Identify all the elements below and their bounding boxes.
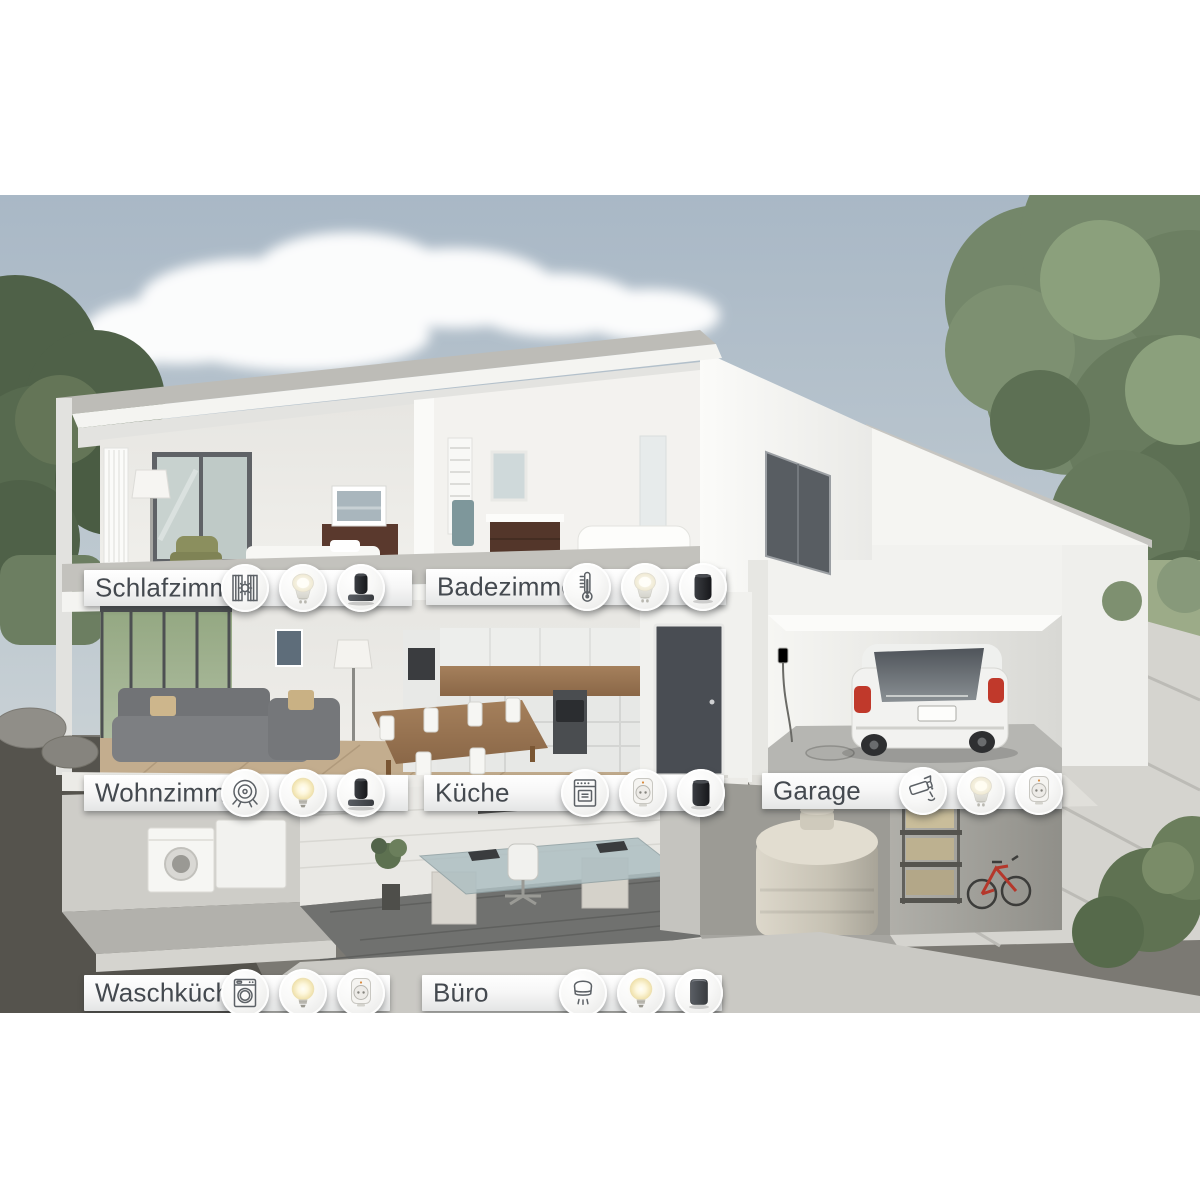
car [842,644,1018,763]
taillight-left [854,686,871,713]
washing-machine-icon [221,969,269,1013]
oven-icon [561,769,609,817]
room-name: Garage [773,776,861,807]
room-name: Büro [433,978,489,1009]
room-label-schlafzimmer: Schlafzimmer [84,570,412,606]
backsplash [440,666,640,696]
oven-badge [561,769,609,817]
speaker-on-shelf-badge [337,564,385,612]
gu10-spot-bulb-icon [957,767,1005,815]
washing-machine [148,828,214,892]
smart-plug-icon [1015,767,1063,815]
door-handle [710,700,715,705]
taillight-right [988,678,1004,703]
smart-speaker-grey-icon [675,969,723,1013]
photo-area: Schlafzimmer [0,195,1200,1013]
smoke-detector-badge [559,969,607,1013]
e27-bulb-badge [279,769,327,817]
wall-oven [408,648,435,680]
room-name: Küche [435,778,510,809]
smart-speaker-badge [679,563,727,611]
smart-home-cutaway-illustration: Schlafzimmer [0,0,1200,1200]
smart-plug-icon [619,769,667,817]
gu10-bulb-badge [957,767,1005,815]
vanity [486,514,564,556]
kitchen-interior [372,628,640,778]
robot-vacuum-badge [221,769,269,817]
shutter-control-icon [221,564,269,612]
smart-plug-icon [337,969,385,1013]
entrance [640,592,752,789]
e27-smart-bulb-icon [617,969,665,1013]
gu10-spot-bulb-icon [279,564,327,612]
shutter-control-badge [221,564,269,612]
office-chair [505,844,541,904]
towel-radiator [448,438,474,546]
e27-bulb-badge [617,969,665,1013]
radiator-thermostat-icon [563,563,611,611]
sofa [112,688,340,762]
e27-bulb-badge [279,969,327,1013]
smart-speaker-icon [679,563,727,611]
radiator [104,448,128,564]
bathroom-interior [434,370,700,568]
smart-plug-badge [1015,767,1063,815]
room-label-garage: Garage [762,773,1062,809]
room-label-kueche: Küche [424,775,724,811]
room-label-badezimmer: Badezimmer [426,569,726,605]
security-camera-icon [899,767,947,815]
gu10-bulb-badge [279,564,327,612]
washing-machine-badge [221,969,269,1013]
shower-glass [640,436,666,536]
security-camera-badge [899,767,947,815]
speaker-on-shelf-badge [337,769,385,817]
thermostat-badge [563,563,611,611]
robot-vacuum-icon [221,769,269,817]
gu10-bulb-badge [621,563,669,611]
room-label-buero: Büro [422,975,722,1011]
speaker-on-shelf-icon [337,769,385,817]
gu10-spot-bulb-icon [621,563,669,611]
e27-smart-bulb-icon [279,769,327,817]
grey-speaker-badge [675,969,723,1013]
speaker-on-shelf-icon [337,564,385,612]
smart-plug-badge [619,769,667,817]
license-plate [918,706,956,721]
smoke-detector-icon [559,969,607,1013]
framed-picture [276,630,302,666]
room-label-wohnzimmer: Wohnzimmer [84,775,408,811]
room-label-waschkueche: Waschküche [84,975,390,1011]
partition-wall [414,398,434,562]
dryer [216,820,286,888]
smart-plug-badge [337,969,385,1013]
smart-speaker-icon [677,769,725,817]
mirror [492,452,526,500]
e27-smart-bulb-icon [279,969,327,1013]
smart-speaker-badge [677,769,725,817]
